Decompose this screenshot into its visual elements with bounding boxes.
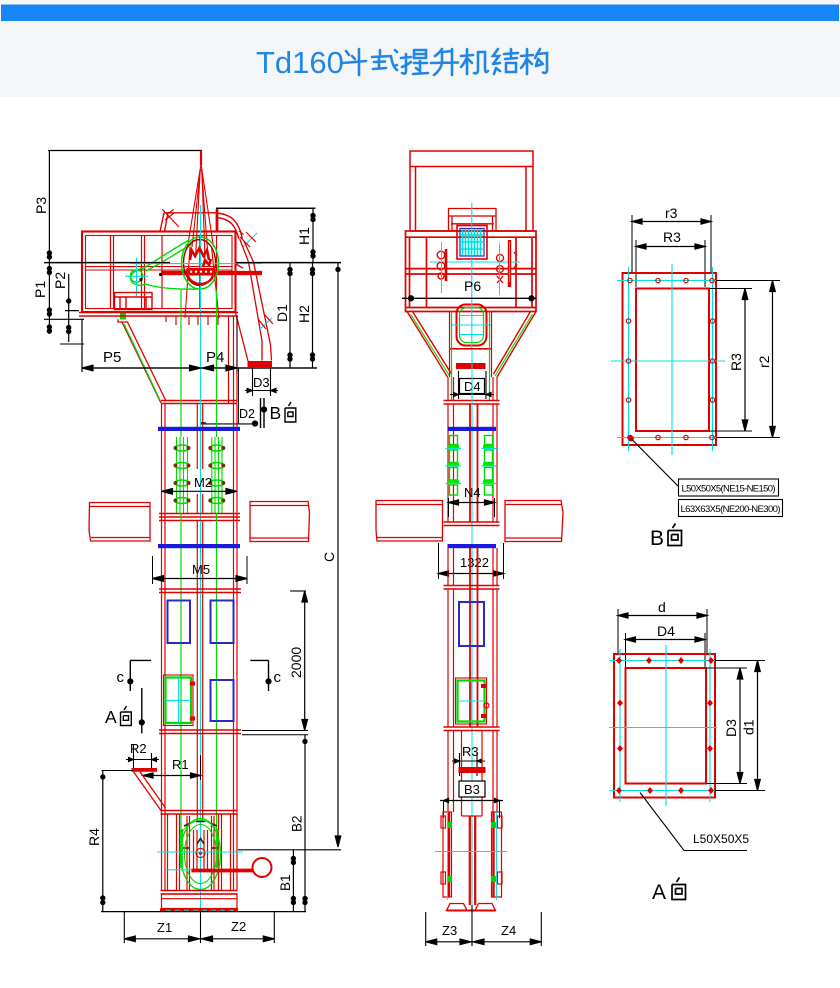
svg-text:H2: H2: [296, 305, 312, 323]
svg-text:R4: R4: [86, 828, 102, 846]
svg-text:R1: R1: [172, 757, 189, 772]
svg-text:2000: 2000: [288, 647, 304, 678]
svg-text:c: c: [274, 669, 282, 686]
svg-text:L50X50X5: L50X50X5: [693, 832, 749, 846]
svg-text:R2: R2: [130, 741, 147, 756]
svg-text:D4: D4: [657, 623, 675, 639]
svg-text:A: A: [652, 881, 666, 904]
svg-text:d1: d1: [741, 719, 757, 735]
svg-text:d: d: [658, 599, 666, 615]
svg-text:D3: D3: [723, 719, 739, 737]
svg-text:L63X63X5(NE200-NE300): L63X63X5(NE200-NE300): [681, 504, 781, 515]
svg-text:R3: R3: [728, 353, 744, 371]
svg-text:1322: 1322: [460, 555, 489, 570]
svg-text:D3: D3: [253, 375, 270, 390]
svg-text:Z4: Z4: [501, 923, 516, 938]
svg-text:L50X50X5(NE15-NE150): L50X50X5(NE15-NE150): [682, 484, 776, 495]
svg-text:P3: P3: [33, 197, 49, 214]
svg-text:P2: P2: [52, 272, 68, 289]
svg-text:B2: B2: [290, 815, 305, 832]
svg-text:B: B: [270, 403, 282, 423]
svg-text:r2: r2: [756, 355, 772, 368]
svg-text:Td160: Td160: [256, 45, 344, 80]
svg-text:P4: P4: [206, 349, 224, 366]
svg-text:C: C: [321, 552, 337, 562]
svg-text:N4: N4: [464, 485, 481, 500]
svg-text:Z1: Z1: [157, 920, 172, 935]
svg-text:Z2: Z2: [231, 919, 246, 934]
svg-text:H1: H1: [296, 227, 312, 245]
svg-text:Z3: Z3: [442, 923, 457, 938]
svg-text:B3: B3: [464, 782, 480, 797]
svg-text:D2: D2: [239, 407, 255, 421]
svg-text:M2: M2: [194, 475, 212, 490]
svg-text:R3: R3: [462, 744, 479, 759]
svg-text:M5: M5: [192, 562, 210, 577]
svg-text:P6: P6: [464, 278, 481, 294]
svg-text:P1: P1: [32, 281, 48, 298]
svg-text:A: A: [105, 707, 117, 727]
svg-text:B: B: [650, 527, 664, 550]
svg-text:D1: D1: [274, 304, 290, 322]
svg-text:R3: R3: [663, 229, 681, 245]
svg-text:P5: P5: [103, 349, 121, 366]
svg-text:B1: B1: [278, 874, 293, 891]
svg-text:r3: r3: [665, 205, 678, 221]
svg-text:c: c: [117, 669, 125, 686]
